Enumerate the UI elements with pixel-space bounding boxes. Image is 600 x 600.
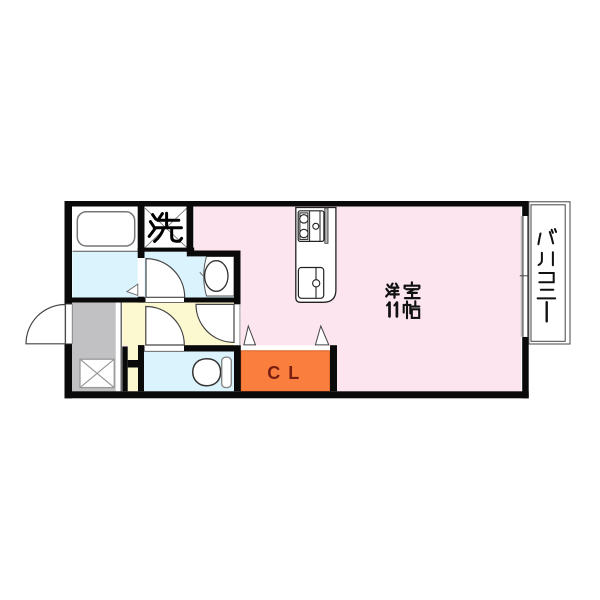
svg-text:C L: C L — [267, 363, 301, 383]
